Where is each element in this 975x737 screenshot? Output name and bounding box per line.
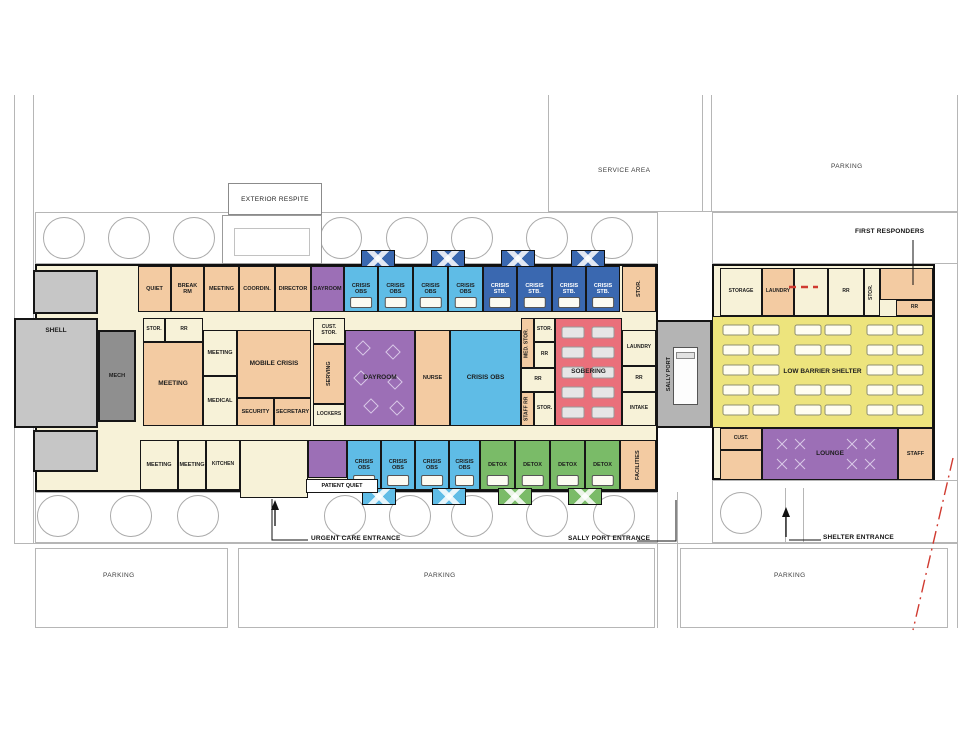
bathroom-pod [361, 250, 395, 267]
room-first-responders [880, 268, 933, 300]
room-detox: DETOX [480, 440, 515, 490]
room-crisis-obs-bottom: CRISIS OBS [449, 440, 480, 490]
room-stor-small: STOR. [534, 392, 555, 426]
first-responders-label: FIRST RESPONDERS [855, 228, 924, 235]
room-shelter-rr-area [720, 450, 762, 480]
room-stor-small: STOR. [534, 318, 555, 342]
room-stor-top-right: STOR. [622, 266, 656, 312]
room-crisis-stb: CRISIS STB. [483, 266, 517, 312]
parking-label-right: PARKING [774, 572, 806, 579]
room-lounge-label: LOUNGE [816, 450, 844, 457]
room-rr-small: RR [534, 342, 555, 368]
tree [37, 495, 79, 537]
shelter-walk-line [803, 488, 804, 543]
tree [110, 495, 152, 537]
exterior-respite-label: EXTERIOR RESPITE [228, 183, 322, 215]
room-detox: DETOX [515, 440, 550, 490]
tree [324, 495, 366, 537]
vehicle [673, 347, 698, 405]
room-dayroom-top: DAYROOM [311, 266, 344, 312]
room-storage: STORAGE [720, 268, 762, 316]
sally-port: SALLY PORT [656, 320, 712, 428]
tree [43, 217, 85, 259]
parking-label-center: PARKING [424, 572, 456, 579]
room-crisis-obs: CRISIS OBS [344, 266, 378, 312]
shelter-entrance-label: SHELTER ENTRANCE [823, 534, 894, 541]
room-crisis-obs: CRISIS OBS [378, 266, 413, 312]
tree [173, 217, 215, 259]
vehicle-windshield [676, 352, 695, 359]
parking-lot-left [35, 548, 228, 628]
lawn-strip-top-right [712, 212, 958, 264]
street-line [548, 95, 549, 211]
room-rr-shelter: RR [828, 268, 864, 316]
room-facilities: FACILITIES [620, 440, 656, 490]
parking-label-top: PARKING [831, 163, 863, 170]
room-shell-upper [33, 270, 98, 314]
room-crisis-obs: CRISIS OBS [448, 266, 483, 312]
room-med-stor: MED. STOR. [521, 318, 534, 368]
room-meeting-large: MEETING [143, 342, 203, 426]
room-stor-mid: STOR. [143, 318, 165, 342]
room-nurse: NURSE [415, 330, 450, 426]
room-cust: CUST. [720, 428, 762, 450]
room-stor-shelter: STOR. [864, 268, 880, 316]
patient-quiet-label: PATIENT QUIET [306, 479, 378, 493]
room-low-barrier-shelter-label: LOW BARRIER SHELTER [783, 368, 861, 375]
bathroom-pod [501, 250, 535, 267]
street-line [957, 95, 958, 628]
room-cust-stor: CUST. STOR. [313, 318, 345, 344]
urgent-care-entrance-label: URGENT CARE ENTRANCE [311, 535, 401, 542]
bathroom-pod [568, 488, 602, 505]
room-quiet: QUIET [138, 266, 171, 312]
room-laundry: LAUNDRY [622, 330, 656, 366]
room-secretary: SECRETARY [274, 398, 311, 426]
tree [526, 495, 568, 537]
room-laundry-shelter: LAUNDRY [762, 268, 794, 316]
room-break-rm: BREAK RM [171, 266, 204, 312]
parking-lot-center [238, 548, 655, 628]
parking-lot-right [680, 548, 948, 628]
room-sobering: SOBERING [555, 318, 622, 426]
room-detox: DETOX [585, 440, 620, 490]
room-mech: MECH [98, 330, 136, 422]
street-line [14, 543, 958, 544]
room-crisis-stb: CRISIS STB. [552, 266, 586, 312]
room-rr-stalls [794, 268, 828, 316]
room-meeting-bottom: MEETING [140, 440, 178, 490]
room-lockers: LOCKERS [313, 404, 345, 426]
exterior-respite-courtyard-inner [234, 228, 310, 256]
room-staff-rr: STAFF RR [521, 392, 534, 426]
tree [320, 217, 362, 259]
street-line [711, 95, 712, 211]
sally-port-label: SALLY PORT [666, 357, 672, 391]
room-coordinator: COORDIN. [239, 266, 275, 312]
room-crisis-obs: CRISIS OBS [413, 266, 448, 312]
room-shell: SHELL [14, 318, 98, 428]
room-serving: SERVING [313, 344, 345, 404]
room-medical: MEDICAL [203, 376, 237, 426]
room-crisis-obs-bottom: CRISIS OBS [415, 440, 449, 490]
bathroom-pod [498, 488, 532, 505]
room-meeting-small: MEETING [203, 330, 237, 376]
room-detox: DETOX [550, 440, 585, 490]
room-security: SECURITY [237, 398, 274, 426]
room-rr-mid: RR [165, 318, 203, 342]
room-mobile-crisis: MOBILE CRISIS [237, 330, 311, 398]
parking-label-left: PARKING [103, 572, 135, 579]
room-dayroom-large: DAYROOM [345, 330, 415, 426]
tree [177, 495, 219, 537]
room-staff: STAFF [898, 428, 933, 480]
room-crisis-stb: CRISIS STB. [517, 266, 552, 312]
shelter-walk-line [785, 488, 786, 543]
floor-plan: EXTERIOR RESPITE SHELL MECH QUIET BREAK … [0, 0, 975, 737]
room-patient-quiet [308, 440, 347, 478]
sally-port-entrance-label: SALLY PORT ENTRANCE [568, 535, 650, 542]
room-lounge: LOUNGE [762, 428, 898, 480]
room-low-barrier-shelter: LOW BARRIER SHELTER [712, 316, 933, 428]
room-rr-right: RR [622, 366, 656, 392]
bathroom-pod [431, 250, 465, 267]
bathroom-pod [571, 250, 605, 267]
room-dayroom-large-label: DAYROOM [363, 374, 396, 381]
service-area-label: SERVICE AREA [598, 167, 650, 174]
tree [108, 217, 150, 259]
room-rr-first-responders: RR [896, 300, 933, 316]
urgent-care-vestibule [240, 440, 308, 498]
room-sobering-label: SOBERING [571, 368, 606, 375]
room-director: DIRECTOR [275, 266, 311, 312]
room-kitchen: KITCHEN [206, 440, 240, 490]
room-crisis-obs-bottom: CRISIS OBS [381, 440, 415, 490]
room-intake: INTAKE [622, 392, 656, 426]
sally-drive-line [657, 492, 658, 628]
room-meeting-bottom: MEETING [178, 440, 206, 490]
room-crisis-stb: CRISIS STB. [586, 266, 620, 312]
bathroom-pod [432, 488, 466, 505]
room-shell-lower [33, 430, 98, 472]
tree [720, 492, 762, 534]
room-meeting-top: MEETING [204, 266, 239, 312]
street-line [702, 95, 703, 211]
sally-drive-line [677, 492, 678, 628]
room-rr-small: RR [521, 368, 555, 392]
room-crisis-obs-large: CRISIS OBS [450, 330, 521, 426]
